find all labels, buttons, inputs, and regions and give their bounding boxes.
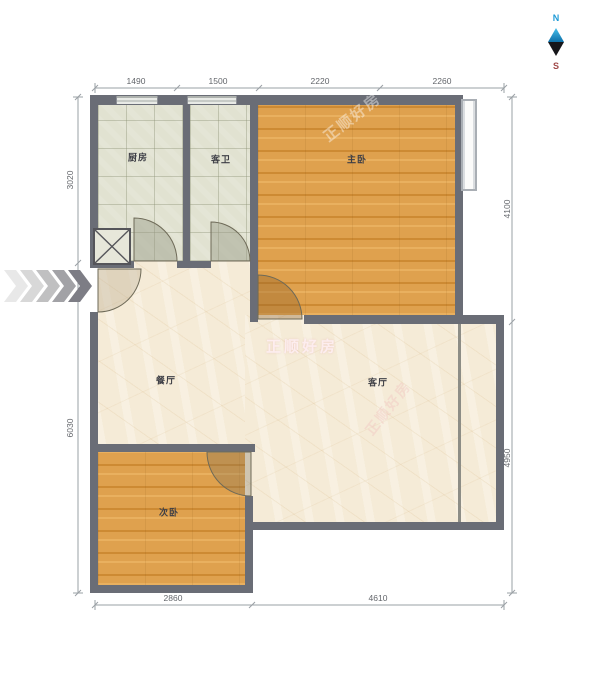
- wall-bedroom2-top: [90, 444, 255, 452]
- master-bedroom-floor: [258, 105, 455, 315]
- guest-bath-floor: [190, 105, 250, 261]
- dim-top-2: 1500: [209, 76, 228, 86]
- wall-living-bottom: [245, 522, 504, 530]
- compass-north-label: N: [553, 13, 560, 23]
- shaft-box: [93, 228, 131, 265]
- dim-left-2: 6030: [65, 419, 75, 438]
- guest-bath-window: [187, 96, 237, 104]
- wall-bath-master: [250, 95, 258, 322]
- compass-needle-icon: [544, 27, 568, 59]
- dim-top-1: 1490: [127, 76, 146, 86]
- dim-right-1: 4100: [502, 200, 512, 219]
- dim-top-4: 2260: [433, 76, 452, 86]
- dining-label: 餐厅: [156, 374, 176, 387]
- dim-bottom-2: 4610: [369, 593, 388, 603]
- dim-top-3: 2220: [311, 76, 330, 86]
- compass-south-label: S: [553, 61, 559, 71]
- wall-kitchen-bath: [183, 100, 190, 262]
- floor-plan: 1490 1500 2220 2260 3020 6030 4100 4950 …: [0, 0, 600, 695]
- balcony-divider: [458, 324, 461, 522]
- dim-bottom-1: 2860: [164, 593, 183, 603]
- wall-left-lower: [90, 312, 98, 593]
- kitchen-window: [116, 96, 158, 104]
- master-bedroom-label: 主卧: [347, 153, 367, 166]
- living-label: 客厅: [368, 376, 388, 389]
- dim-left-1: 3020: [65, 171, 75, 190]
- guest-bath-label: 客卫: [211, 153, 231, 166]
- wall-master-bottom: [304, 315, 504, 324]
- watermark-center: 正顺好房: [266, 336, 338, 357]
- wall-kitchen-bottom-b: [177, 261, 211, 268]
- wall-bedroom2-right: [245, 496, 253, 593]
- dim-right-2: 4950: [502, 449, 512, 468]
- entry-arrows: [4, 270, 92, 302]
- kitchen-label: 厨房: [128, 151, 148, 164]
- second-bedroom-label: 次卧: [159, 506, 179, 519]
- wall-right-lower: [496, 316, 504, 530]
- dining-floor: [98, 261, 250, 444]
- second-bedroom-floor: [98, 452, 245, 585]
- master-bay-window: [461, 99, 477, 191]
- wall-bedroom2-bottom: [90, 585, 253, 593]
